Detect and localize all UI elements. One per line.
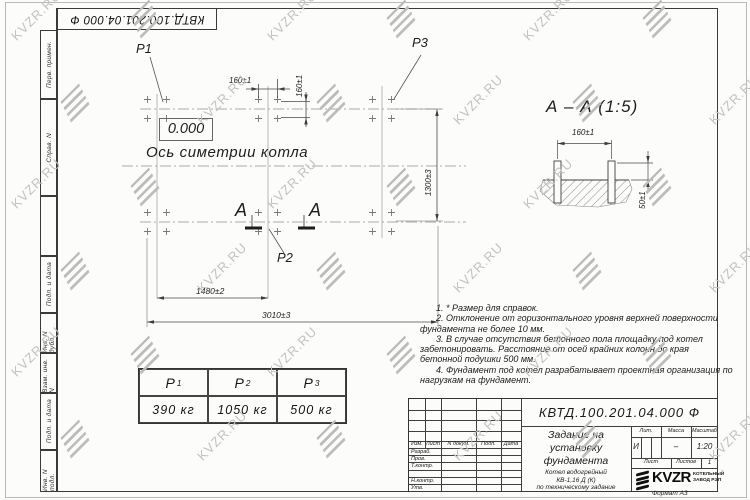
note-item-1: 1. * Размер для справок. — [420, 303, 733, 313]
dim-bolt-spacing-v: 160±1 — [296, 75, 304, 97]
dim-bolt-protrusion: 50±1 — [639, 191, 647, 209]
format-label: Формат А3 — [652, 491, 688, 498]
section-letter-left: А — [235, 201, 247, 219]
section-letter-right: А — [309, 201, 321, 219]
note-item-3: 3. В случае отсутствия бетонного пола пл… — [420, 334, 733, 365]
elevation-mark: 0.000 — [168, 122, 204, 137]
dim-foundation-width: 1300±3 — [425, 169, 433, 196]
note-item-2: 2. Отклонение от горизонтального уровня … — [420, 313, 733, 334]
load-point-label-p2: Р2 — [277, 251, 293, 264]
dim-section-bolt-spacing: 160±1 — [572, 129, 594, 137]
section-view-title: А – А (1:5) — [546, 98, 638, 115]
elevation-mark-box: 0.000 — [159, 118, 213, 141]
load-point-label-p3: Р3 — [412, 36, 428, 49]
annotation-layer: Р1 Р3 Р2 0.000 Ось симетрии котла 160±1 … — [0, 0, 750, 500]
notes-block: 1. * Размер для справок. 2. Отклонение о… — [420, 303, 733, 385]
note-item-4: 4. Фундамент под котел разрабатывает про… — [420, 365, 733, 386]
symmetry-axis-label: Ось симетрии котла — [146, 145, 308, 160]
dim-bolt-spacing-h: 160±1 — [229, 77, 251, 85]
dim-total-span: 3010±3 — [262, 311, 290, 320]
load-point-label-p1: Р1 — [136, 42, 152, 55]
drawing-sheet: Перв. примен. Справ. N Подп. и дата Инв.… — [0, 0, 750, 500]
dim-left-span: 1480±2 — [196, 287, 224, 296]
